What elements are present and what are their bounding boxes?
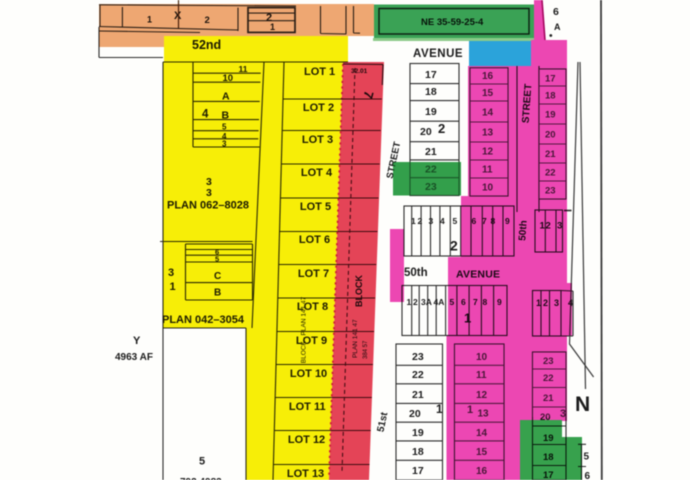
svg-text:3A: 3A xyxy=(421,297,432,307)
svg-text:6: 6 xyxy=(585,471,591,480)
svg-text:4A: 4A xyxy=(434,297,445,307)
svg-text:N: N xyxy=(575,393,590,416)
svg-text:3: 3 xyxy=(429,216,434,226)
svg-text:Y: Y xyxy=(133,335,141,347)
svg-text:2: 2 xyxy=(438,121,445,136)
svg-text:2: 2 xyxy=(413,297,418,307)
svg-text:1: 1 xyxy=(411,216,416,226)
svg-text:23: 23 xyxy=(412,351,424,363)
svg-text:1: 1 xyxy=(436,402,443,416)
svg-text:17: 17 xyxy=(425,69,437,81)
svg-text:18: 18 xyxy=(425,86,437,98)
svg-text:6: 6 xyxy=(553,6,559,18)
svg-text:21: 21 xyxy=(425,146,437,158)
svg-text:18: 18 xyxy=(412,446,424,458)
svg-text:4: 4 xyxy=(440,216,445,226)
svg-text:17: 17 xyxy=(412,465,424,477)
svg-text:4963 AF: 4963 AF xyxy=(115,352,153,363)
svg-text:19: 19 xyxy=(425,106,437,118)
svg-text:2: 2 xyxy=(450,238,458,254)
svg-text:A: A xyxy=(554,22,561,32)
svg-text:2: 2 xyxy=(418,216,423,226)
svg-text:20: 20 xyxy=(420,126,432,138)
svg-text:5: 5 xyxy=(584,452,590,463)
svg-text:20: 20 xyxy=(409,408,421,420)
svg-text:22: 22 xyxy=(412,369,424,381)
svg-text:AVENUE: AVENUE xyxy=(413,48,463,60)
svg-text:21: 21 xyxy=(412,389,424,401)
svg-text:5: 5 xyxy=(453,216,458,226)
svg-text:50th: 50th xyxy=(404,267,428,279)
svg-text:5: 5 xyxy=(199,456,205,468)
svg-text:1: 1 xyxy=(407,297,412,307)
svg-text:19: 19 xyxy=(412,427,424,439)
